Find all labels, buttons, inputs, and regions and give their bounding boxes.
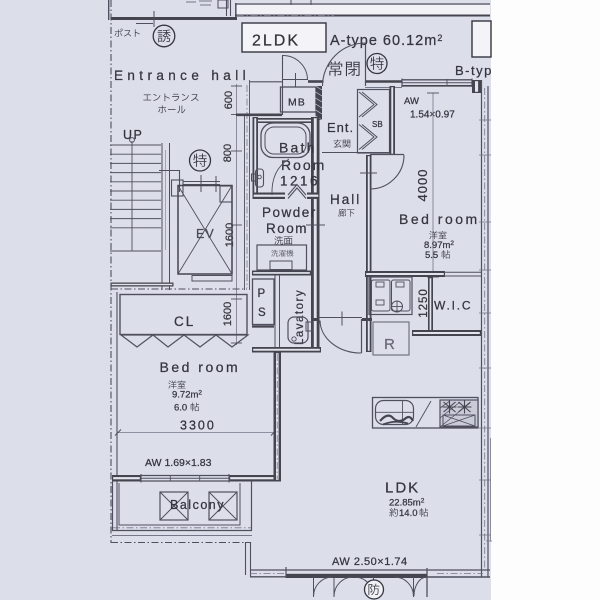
svg-text:1600: 1600 — [224, 223, 236, 247]
svg-text:22.85m2: 22.85m2 — [389, 498, 425, 509]
svg-text:MB: MB — [288, 97, 306, 109]
svg-text:AW 2.50×1.74: AW 2.50×1.74 — [332, 556, 408, 568]
svg-text:Ent.: Ent. — [327, 120, 354, 135]
svg-text:2LDK: 2LDK — [252, 33, 300, 50]
svg-text:B-typ: B-typ — [455, 63, 493, 78]
svg-text:3300: 3300 — [180, 419, 216, 433]
svg-text:EV: EV — [196, 227, 215, 241]
svg-text:Room: Room — [266, 221, 308, 236]
svg-text:R: R — [384, 336, 395, 353]
svg-text:Powder: Powder — [262, 205, 317, 220]
svg-text:CL: CL — [174, 314, 195, 329]
svg-text:Bed room: Bed room — [399, 211, 480, 227]
svg-text:9.72m2: 9.72m2 — [172, 390, 202, 401]
svg-text:5.5: 5.5 — [425, 250, 438, 261]
svg-text:600: 600 — [223, 91, 235, 109]
svg-text:Entrance hall: Entrance hall — [114, 68, 250, 83]
svg-text:Balcony: Balcony — [170, 498, 225, 512]
svg-text:SB: SB — [372, 120, 383, 129]
svg-text:Bed room: Bed room — [160, 359, 241, 375]
svg-text:Hall: Hall — [330, 192, 361, 207]
svg-text:AW: AW — [404, 96, 419, 107]
svg-text:800: 800 — [222, 144, 234, 162]
svg-text:1216: 1216 — [280, 174, 320, 189]
svg-text:AW 1.69×1.83: AW 1.69×1.83 — [145, 457, 212, 469]
svg-text:UP: UP — [123, 128, 143, 142]
svg-text:1600: 1600 — [222, 302, 234, 326]
svg-text:Bath: Bath — [279, 140, 317, 156]
svg-text:P: P — [258, 288, 266, 300]
svg-text:LDK: LDK — [385, 480, 420, 497]
svg-text:4000: 4000 — [415, 169, 430, 202]
svg-text:14.0: 14.0 — [399, 508, 418, 519]
svg-text:W.I.C: W.I.C — [434, 299, 472, 313]
svg-text:S: S — [258, 307, 266, 319]
svg-text:6.0: 6.0 — [174, 403, 187, 414]
